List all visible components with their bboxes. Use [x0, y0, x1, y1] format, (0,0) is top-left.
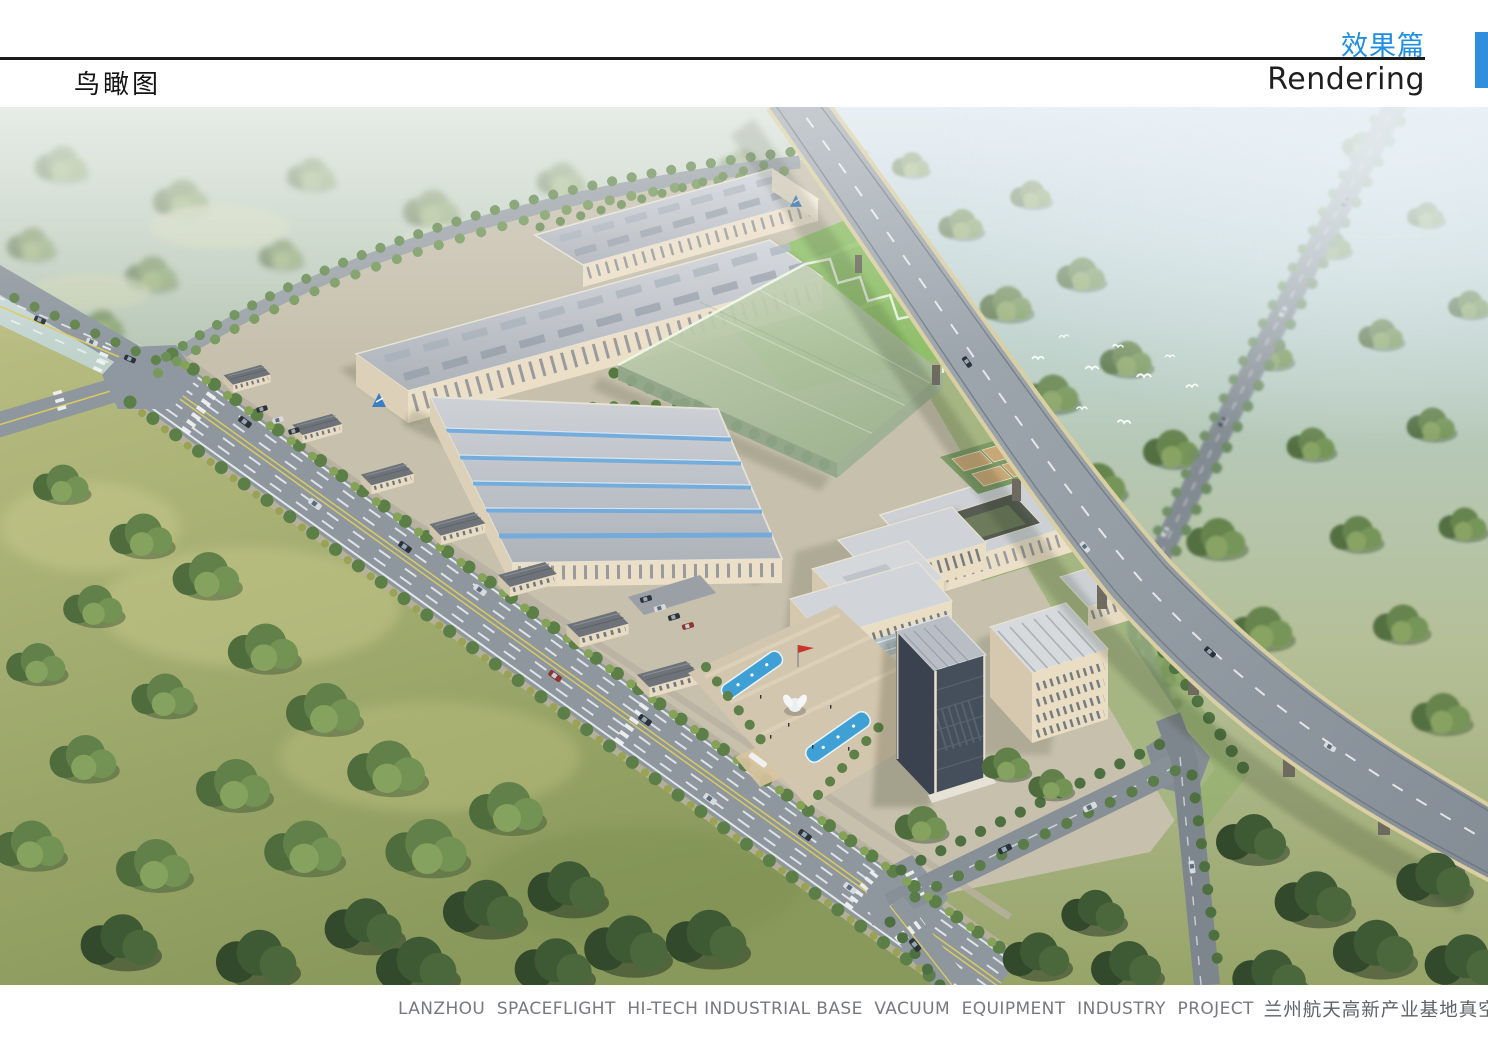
footer-caption: LANZHOU SPACEFLIGHT HI-TECH INDUSTRIAL B…: [398, 995, 1488, 1023]
footer-caption-cn: 兰州航天高新产业基地真空装备产业园项目: [1264, 996, 1488, 1022]
header-rule: [0, 57, 1425, 60]
page-label: 鸟瞰图: [74, 64, 161, 101]
aerial-rendering: [0, 107, 1488, 985]
haze-corner: [850, 107, 1488, 537]
section-title-cn: 效果篇: [1341, 24, 1425, 63]
footer-caption-en: LANZHOU SPACEFLIGHT HI-TECH INDUSTRIAL B…: [398, 999, 1254, 1019]
document-page: 效果篇 Rendering 鸟瞰图: [0, 0, 1488, 1052]
header-accent-square: [1475, 32, 1488, 88]
rendering-image: [0, 107, 1488, 985]
section-title-en: Rendering: [1267, 62, 1425, 97]
